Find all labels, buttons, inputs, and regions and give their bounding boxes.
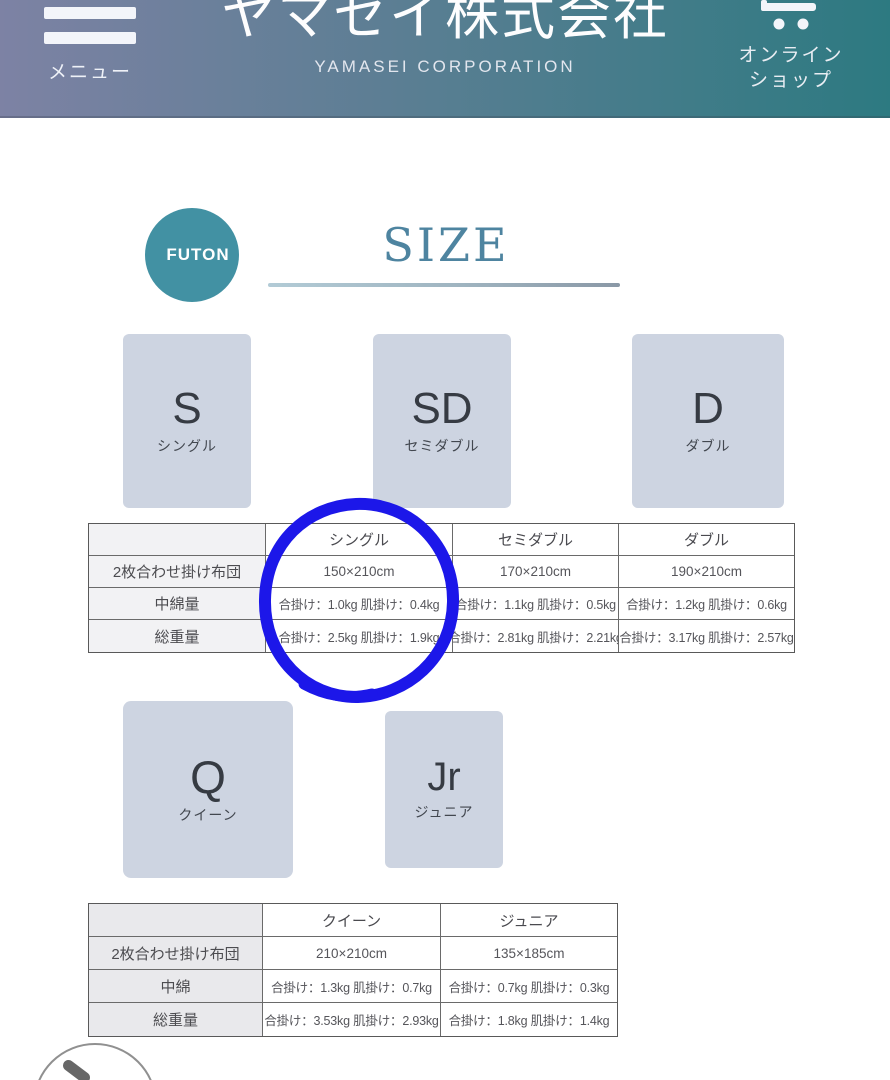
row-label-duvet: 2枚合わせ掛け布団 [89,556,266,588]
table-cell: 210×210cm [263,937,441,970]
section-title-underline [268,283,620,287]
size-label: ダブル [686,436,731,456]
shop-label-line1: オンライン [728,40,854,67]
site-header: メニュー ヤマセイ株式会社 YAMASEI CORPORATION オンライン … [0,0,890,118]
table-cell: 合掛け：1.8kg 肌掛け：1.4kg [441,1003,617,1036]
size-card-queen: Q クイーン [123,701,293,878]
col-header-queen: クイーン [263,904,441,937]
size-label: ジュニア [414,802,473,822]
pencil-icon [61,1058,92,1080]
size-code: D [692,387,724,431]
futon-size-page: メニュー ヤマセイ株式会社 YAMASEI CORPORATION オンライン … [0,0,890,1080]
table-corner-cell [89,904,263,937]
online-shop-button[interactable]: オンライン ショップ [728,0,854,96]
company-title: ヤマセイ株式会社 [221,0,669,46]
table-cell: 合掛け：1.2kg 肌掛け：0.6kg [619,588,794,620]
table-cell: 135×185cm [441,937,617,970]
row-label-total-weight: 総重量 [89,620,266,652]
size-label: シングル [157,436,217,456]
table-corner-cell [89,524,266,556]
futon-badge-label: FUTON [166,245,229,265]
size-code: S [172,387,201,431]
size-label: クイーン [178,805,237,825]
size-code: SD [411,387,472,431]
table-cell: 合掛け：3.17kg 肌掛け：2.57kg [619,620,794,652]
shopping-cart-icon [756,0,826,32]
table-cell: 合掛け：3.53kg 肌掛け：2.93kg [263,1003,441,1036]
size-spec-table-1: シングル セミダブル ダブル 2枚合わせ掛け布団 150×210cm 170×2… [88,523,795,653]
size-spec-table-2: クイーン ジュニア 2枚合わせ掛け布団 210×210cm 135×185cm … [88,903,618,1037]
shop-label-line2: ショップ [728,65,854,92]
table-cell: 合掛け：1.1kg 肌掛け：0.5kg [453,588,619,620]
size-card-single: S シングル [123,334,251,508]
row-label-filling: 中綿 [89,970,263,1003]
size-card-double: D ダブル [632,334,784,508]
table-cell: 合掛け：1.3kg 肌掛け：0.7kg [263,970,441,1003]
col-header-semidouble: セミダブル [453,524,619,556]
size-code: Q [190,754,226,800]
table-cell: 合掛け：2.5kg 肌掛け：1.9kg [266,620,453,652]
company-subtitle: YAMASEI CORPORATION [314,57,575,77]
hamburger-menu-icon [44,32,136,44]
size-card-junior: Jr ジュニア [385,711,503,868]
col-header-double: ダブル [619,524,794,556]
size-card-semidouble: SD セミダブル [373,334,511,508]
table-cell: 190×210cm [619,556,794,588]
table-cell: 合掛け：1.0kg 肌掛け：0.4kg [266,588,453,620]
row-label-total-weight: 総重量 [89,1003,263,1036]
row-label-duvet: 2枚合わせ掛け布団 [89,937,263,970]
menu-label: メニュー [38,57,142,84]
table-cell: 150×210cm [266,556,453,588]
hamburger-menu-icon [44,7,136,19]
col-header-single: シングル [266,524,453,556]
table-cell: 合掛け：0.7kg 肌掛け：0.3kg [441,970,617,1003]
table-cell: 170×210cm [453,556,619,588]
contact-fab-button[interactable] [33,1043,157,1080]
col-header-junior: ジュニア [441,904,617,937]
row-label-filling: 中綿量 [89,588,266,620]
table-cell: 合掛け：2.81kg 肌掛け：2.21kg [453,620,619,652]
menu-button[interactable]: メニュー [44,0,136,84]
futon-badge: FUTON [145,208,239,302]
size-label: セミダブル [405,436,480,456]
size-code: Jr [427,757,460,797]
section-title: SIZE [270,218,622,272]
